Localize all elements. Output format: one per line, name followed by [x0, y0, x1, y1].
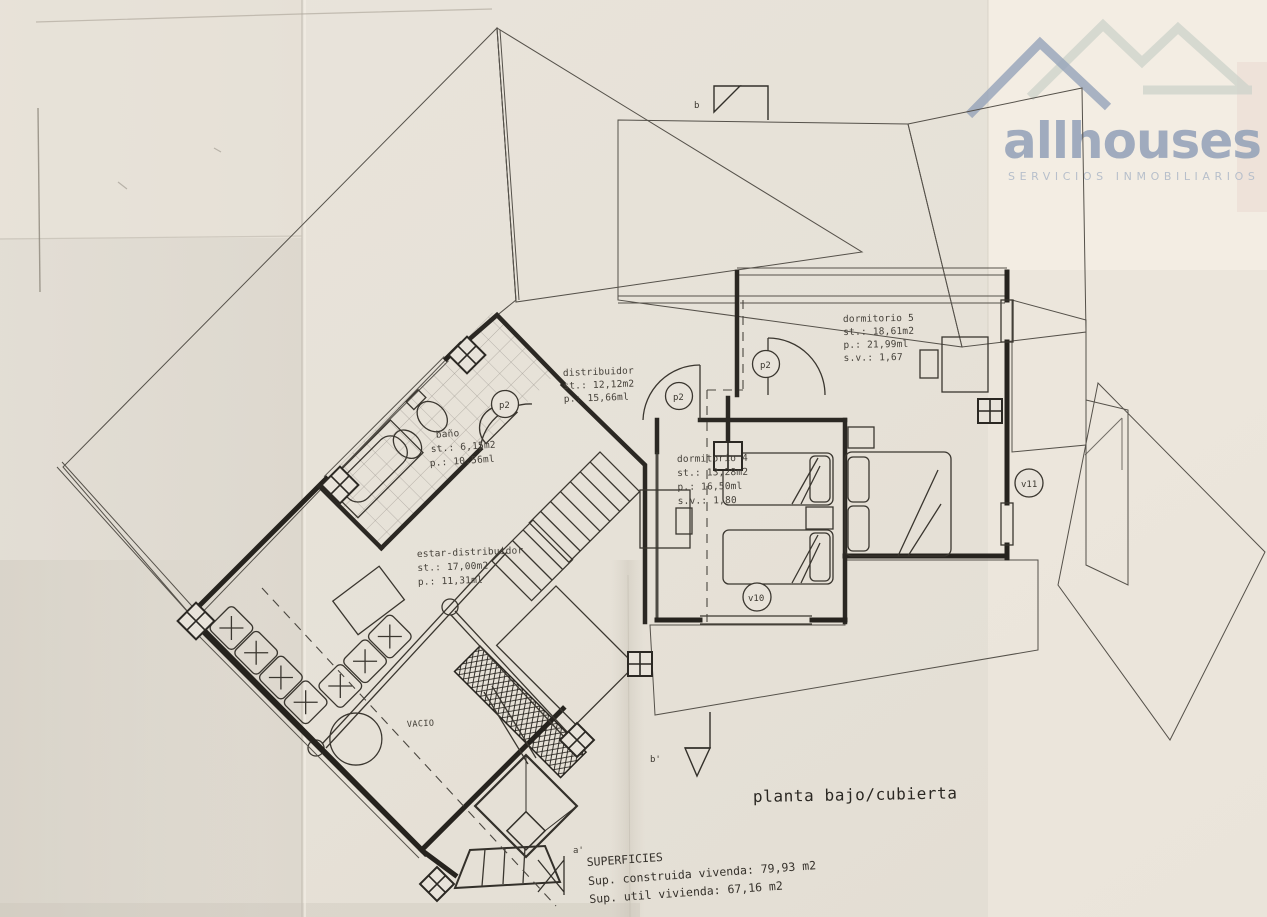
- room-name: dormitorio 4: [677, 453, 748, 465]
- floorplan-drawing: allhouses SERVICIOS INMOBILIARIOS: [0, 0, 1267, 917]
- room-p: p.: 16,50ml: [677, 481, 742, 493]
- label-vacio: VACIO: [407, 719, 435, 730]
- room-sv: s.v.: 1,80: [678, 495, 737, 507]
- window-marker-v11: v11: [1021, 480, 1037, 490]
- room-p: p.: 15,66ml: [564, 392, 629, 405]
- logo-tagline: SERVICIOS INMOBILIARIOS: [1008, 170, 1259, 183]
- room-p: p.: 21,99ml: [843, 339, 908, 351]
- room-st: st.: 18,61m2: [843, 326, 914, 338]
- section-label-b: b: [694, 101, 699, 111]
- logo-wordmark: allhouses: [1003, 112, 1261, 170]
- plan-title: planta bajo/cubierta: [753, 783, 958, 806]
- door-marker-p2: p2: [673, 393, 684, 403]
- label-distribuidor: distribuidor st.: 12,12m2 p.: 15,66ml: [563, 366, 635, 405]
- room-name: dormitorio 5: [843, 313, 914, 325]
- door-marker-p2: p2: [499, 401, 510, 411]
- door-marker-p2: p2: [760, 361, 771, 371]
- section-label-b-prime: b': [650, 755, 661, 765]
- room-sv: s.v.: 1,67: [844, 352, 903, 364]
- scanned-floorplan-page: allhouses SERVICIOS INMOBILIARIOS: [0, 0, 1267, 917]
- room-st: st.: 13,28m2: [677, 467, 748, 479]
- room-p: p.: 11,31ml: [418, 575, 483, 588]
- room-name: baño: [435, 428, 459, 441]
- section-label-a-prime: a': [573, 846, 584, 856]
- window-marker-v10: v10: [748, 594, 764, 604]
